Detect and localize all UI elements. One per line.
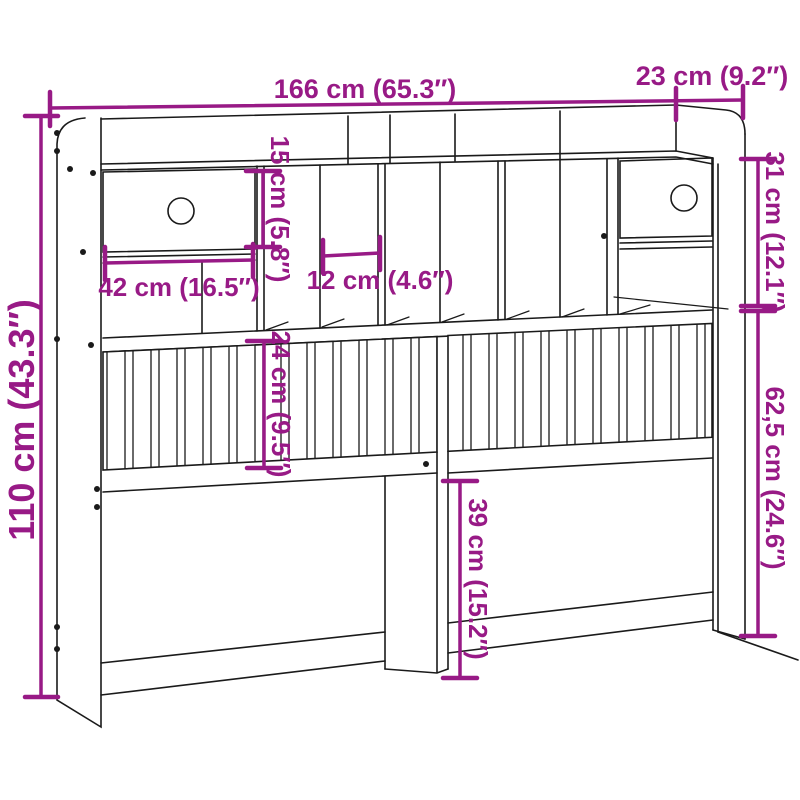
dimension-drawer-width-label: 42 cm (16.5″) (98, 272, 259, 302)
headboard-technical-drawing: 166 cm (65.3″) 23 cm (9.2″) 110 cm (43.3… (0, 0, 800, 800)
right-drawer-handle-hole (671, 185, 697, 211)
furniture-outline (54, 105, 798, 727)
dimension-compartment-width: 12 cm (4.6″) (307, 237, 454, 295)
left-drawer (103, 169, 255, 333)
dimension-drawer-width: 42 cm (16.5″) (98, 244, 259, 302)
dimension-opening-height-label: 15 cm (5.8″) (265, 136, 295, 283)
dimension-lower-section-height: 62,5 cm (24.6″) (741, 311, 790, 636)
dimension-total-height: 110 cm (43.3″) (1, 116, 58, 697)
dimension-depth-label: 23 cm (9.2″) (636, 61, 789, 91)
dimension-width-label: 166 cm (65.3″) (274, 74, 457, 104)
cubby-dividers (257, 158, 650, 331)
dimension-lower-section-label: 62,5 cm (24.6″) (760, 386, 790, 569)
dimension-leg-section-label: 39 cm (15.2″) (463, 498, 493, 659)
dimension-slat-panel-label: 24 cm (9.5″) (266, 331, 296, 478)
slat-panel-right (448, 323, 712, 451)
dimension-top-section-label: 31 cm (12.1″) (760, 151, 790, 312)
product-dimension-image: 166 cm (65.3″) 23 cm (9.2″) 110 cm (43.3… (0, 0, 800, 800)
right-drawer (620, 158, 712, 249)
left-side-panel (57, 118, 101, 727)
left-drawer-handle-hole (168, 198, 194, 224)
dimension-total-height-label: 110 cm (43.3″) (1, 299, 42, 540)
dimension-width: 166 cm (65.3″) 23 cm (9.2″) (50, 61, 788, 126)
dimension-top-section-height: 31 cm (12.1″) (741, 151, 790, 312)
dimension-leg-section-height: 39 cm (15.2″) (443, 481, 493, 678)
dimension-compartment-width-label: 12 cm (4.6″) (307, 265, 454, 295)
